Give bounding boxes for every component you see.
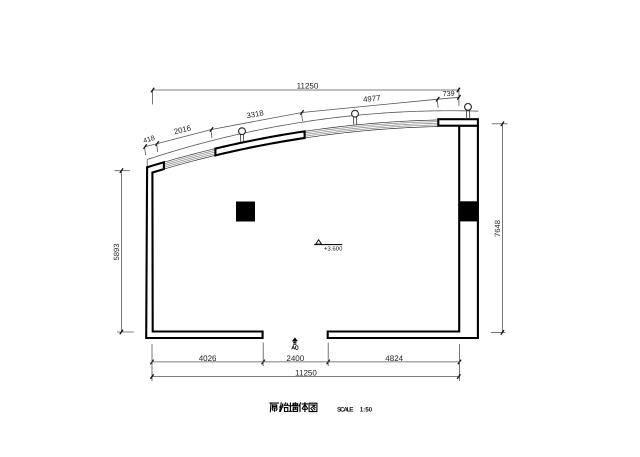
svg-text:11250: 11250 <box>297 82 319 91</box>
svg-text:1:50: 1:50 <box>360 407 373 414</box>
svg-text:4824: 4824 <box>385 354 403 363</box>
svg-text:5893: 5893 <box>112 244 121 261</box>
svg-text:11250: 11250 <box>295 369 317 378</box>
svg-text:739: 739 <box>442 89 455 99</box>
svg-text:7648: 7648 <box>493 220 502 237</box>
svg-text:2400: 2400 <box>286 354 304 363</box>
svg-text:4977: 4977 <box>363 93 381 104</box>
svg-text:SCALE: SCALE <box>337 407 354 414</box>
svg-text:4026: 4026 <box>199 354 217 363</box>
svg-text:+3.600: +3.600 <box>324 246 343 253</box>
